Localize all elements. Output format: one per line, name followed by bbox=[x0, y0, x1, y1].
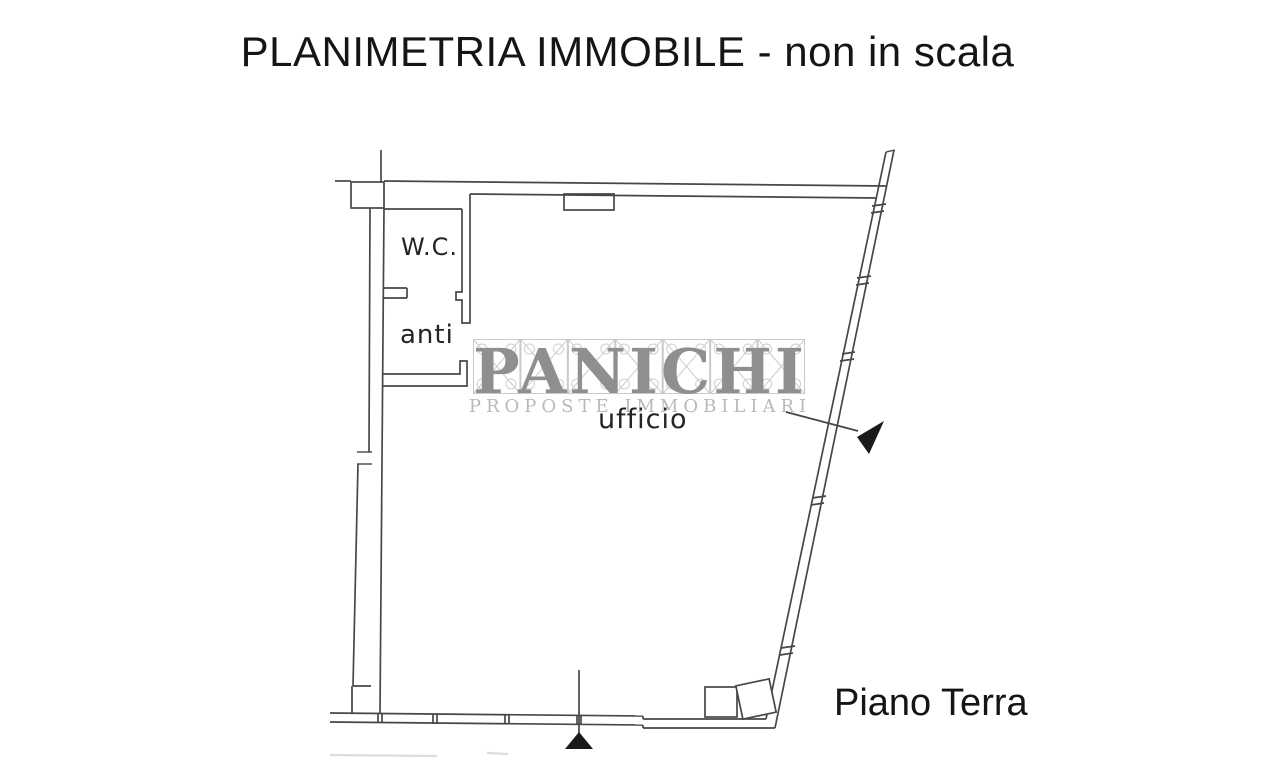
scan-artifact bbox=[330, 755, 437, 756]
bottom-wall-left-bottom bbox=[330, 722, 643, 725]
entrance-arrow-icon bbox=[565, 670, 593, 749]
room-label-ufficio: ufficio bbox=[598, 404, 688, 435]
room-label-wc: W.C. bbox=[401, 233, 458, 261]
bottom-wall-left-top bbox=[330, 713, 643, 716]
room-label-anti: anti bbox=[400, 320, 454, 350]
top-wall-outer bbox=[384, 181, 886, 186]
floor-plan-page: PLANIMETRIA IMMOBILE - non in scala PANI… bbox=[0, 0, 1280, 762]
office-top-inner bbox=[470, 194, 877, 198]
corner-pillar bbox=[351, 182, 384, 208]
anti-bottom-wall bbox=[383, 361, 467, 386]
floor-label: Piano Terra bbox=[834, 682, 1028, 725]
left-wall-outer-upper bbox=[369, 208, 370, 452]
scan-artifact bbox=[487, 753, 508, 754]
left-wall-inner bbox=[380, 208, 384, 713]
top-wall-niche bbox=[564, 194, 614, 210]
right-wall-outer bbox=[775, 150, 894, 728]
left-wall-outer-lower bbox=[353, 464, 358, 686]
corner-pillar-square bbox=[705, 687, 737, 717]
wc-right-wall bbox=[456, 194, 470, 323]
corner-pillar-rotated bbox=[736, 679, 776, 719]
floor-plan-drawing bbox=[0, 0, 1280, 762]
